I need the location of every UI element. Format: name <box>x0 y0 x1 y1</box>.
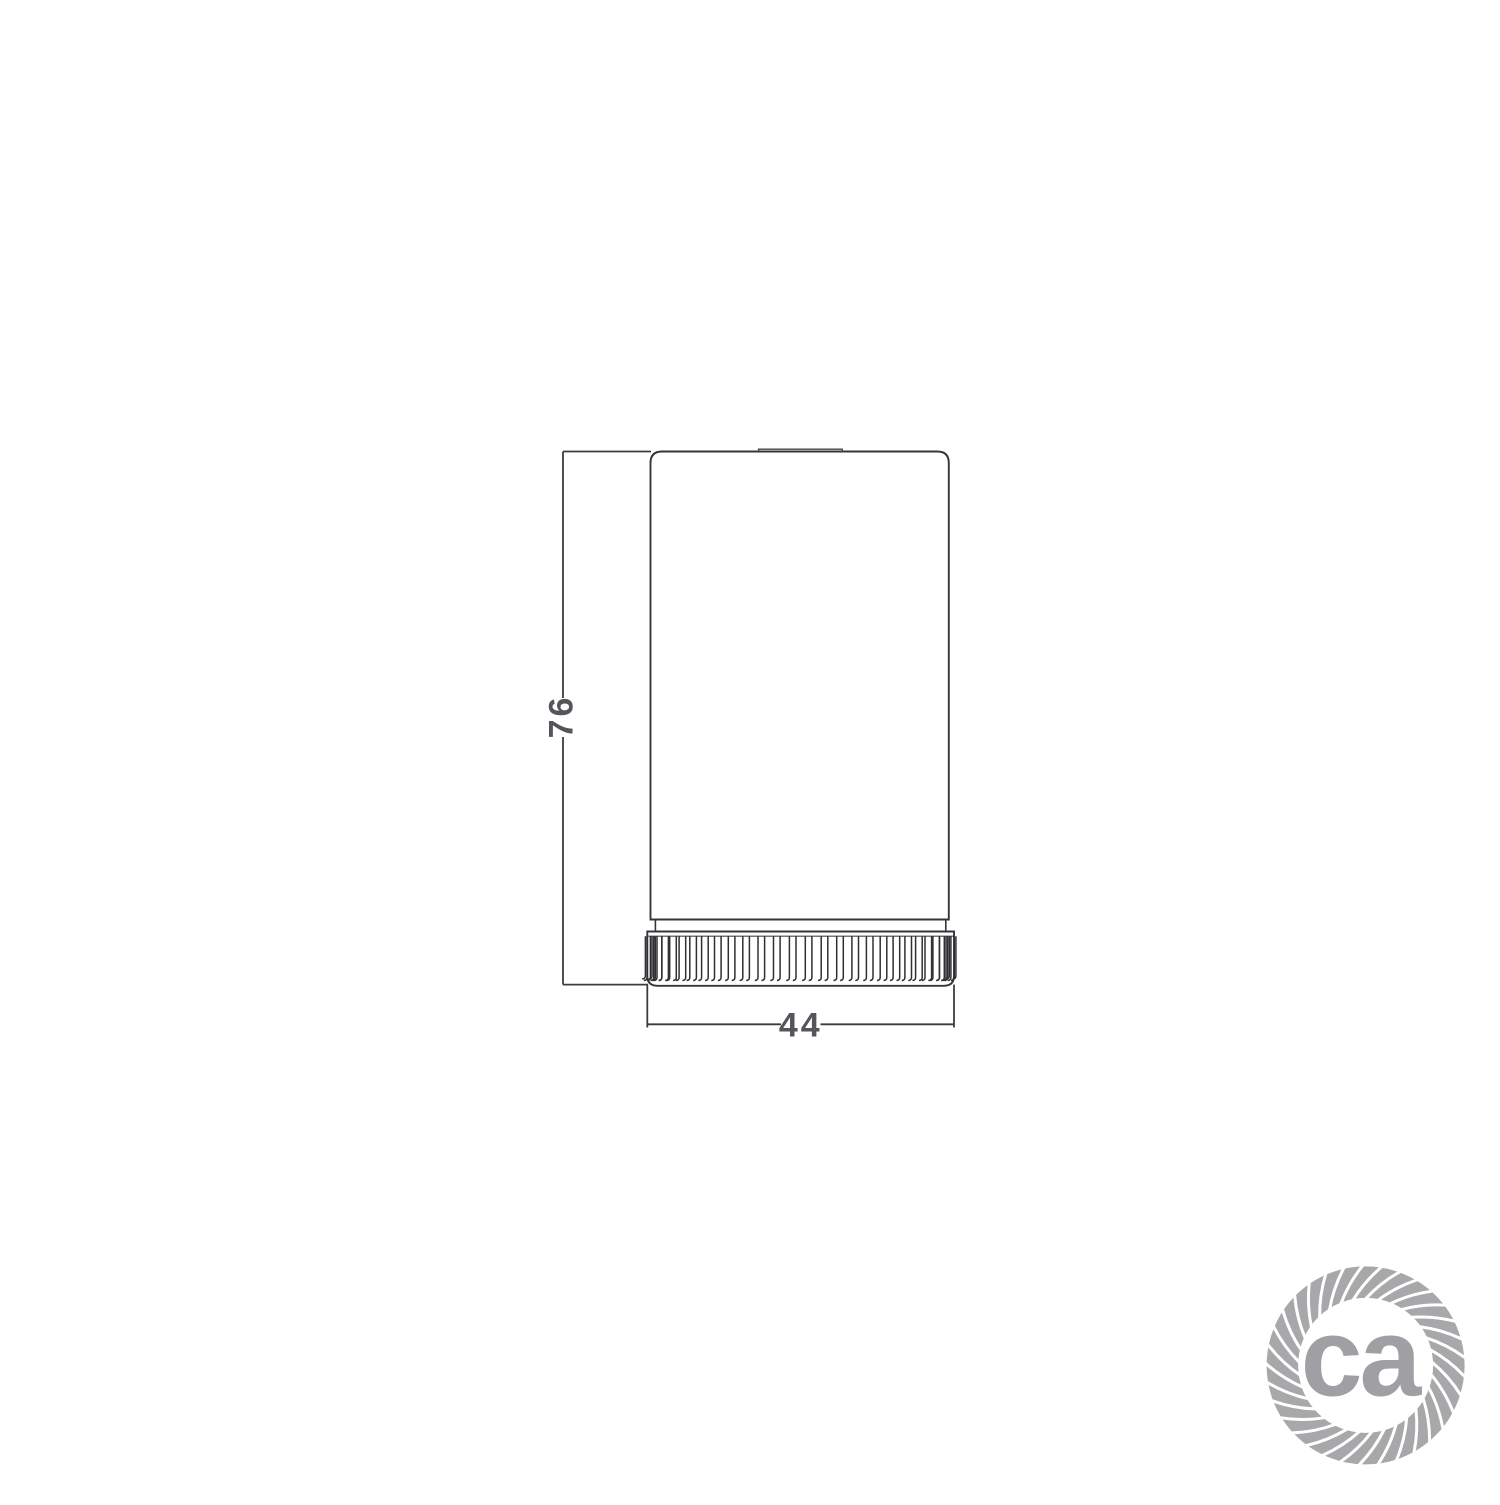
svg-text:44: 44 <box>779 1007 823 1045</box>
svg-text:76: 76 <box>543 695 581 739</box>
svg-text:ca: ca <box>1301 1296 1423 1420</box>
